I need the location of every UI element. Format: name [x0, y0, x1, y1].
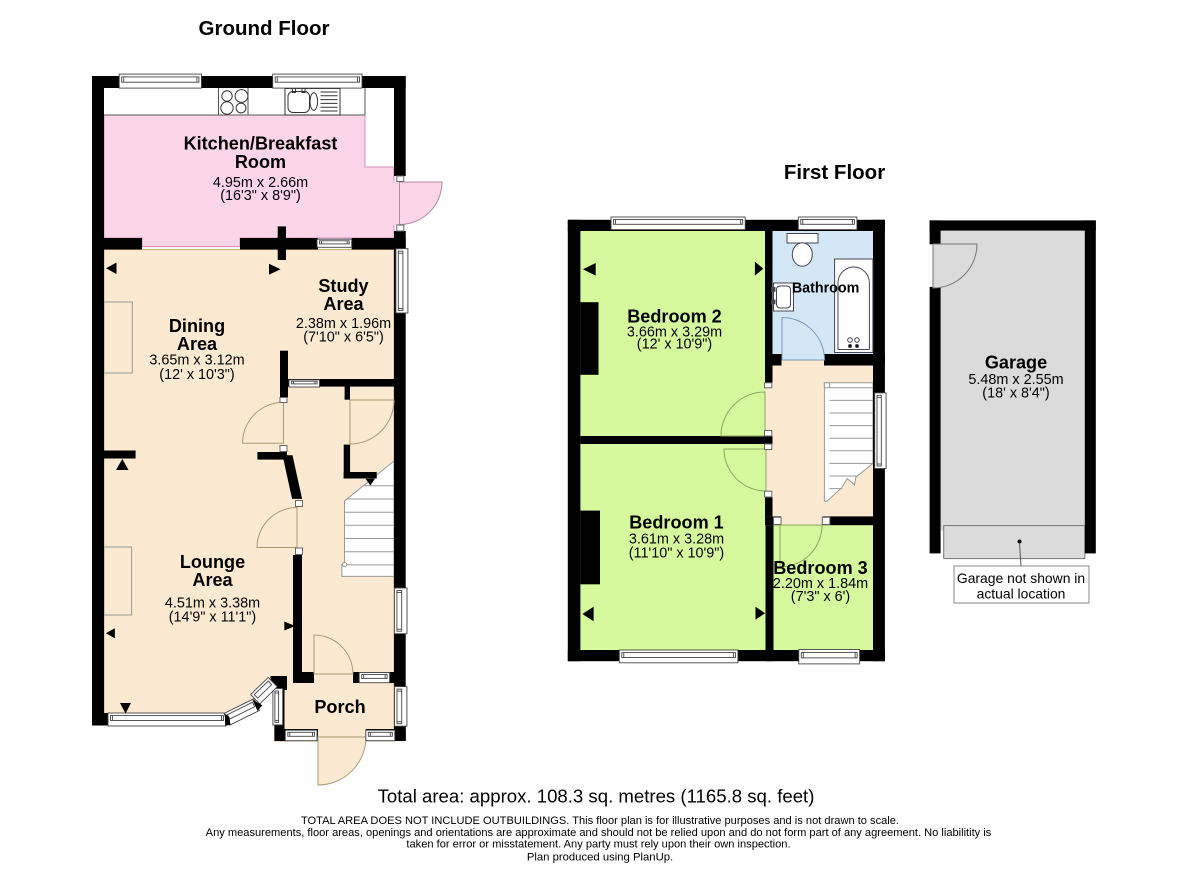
- svg-text:First Floor: First Floor: [784, 161, 885, 184]
- svg-text:Ground Floor: Ground Floor: [199, 17, 330, 40]
- svg-text:(18' x 8'4"): (18' x 8'4"): [982, 386, 1049, 402]
- svg-text:Study: Study: [318, 276, 368, 296]
- svg-text:Any measurements, floor areas,: Any measurements, floor areas, openings …: [206, 827, 992, 839]
- svg-text:Bedroom 2: Bedroom 2: [627, 306, 722, 326]
- svg-text:Area: Area: [323, 294, 364, 314]
- svg-text:Garage not shown in: Garage not shown in: [957, 570, 1085, 586]
- svg-text:(16'3" x 8'9"): (16'3" x 8'9"): [220, 188, 301, 204]
- svg-text:(11'10" x 10'9"): (11'10" x 10'9"): [629, 546, 724, 562]
- svg-text:Kitchen/Breakfast: Kitchen/Breakfast: [184, 134, 338, 154]
- svg-text:Plan produced using PlanUp.: Plan produced using PlanUp.: [527, 852, 673, 864]
- svg-text:(14'9" x 11'1"): (14'9" x 11'1"): [169, 609, 256, 625]
- svg-text:Total area: approx. 108.3 sq.: Total area: approx. 108.3 sq. metres (11…: [378, 786, 815, 807]
- svg-text:Area: Area: [177, 334, 218, 354]
- svg-text:Bedroom 1: Bedroom 1: [629, 513, 724, 533]
- svg-text:(7'3" x 6'): (7'3" x 6'): [791, 589, 850, 605]
- svg-text:Lounge: Lounge: [180, 552, 245, 572]
- svg-text:Bathroom: Bathroom: [792, 281, 860, 297]
- svg-text:TOTAL AREA DOES NOT INCLUDE OU: TOTAL AREA DOES NOT INCLUDE OUTBUILDINGS…: [301, 815, 899, 827]
- svg-text:Garage: Garage: [985, 353, 1047, 373]
- svg-text:taken for error or misstatemen: taken for error or misstatement. Any par…: [406, 839, 790, 851]
- svg-text:Area: Area: [192, 570, 233, 590]
- svg-text:Dining: Dining: [169, 316, 225, 336]
- svg-text:Room: Room: [235, 152, 286, 172]
- svg-text:(7'10" x 6'5"): (7'10" x 6'5"): [303, 329, 384, 345]
- svg-text:(12' x 10'3"): (12' x 10'3"): [159, 367, 234, 383]
- svg-text:(12' x 10'9"): (12' x 10'9"): [637, 337, 712, 353]
- svg-text:actual location: actual location: [977, 586, 1066, 602]
- svg-text:Porch: Porch: [314, 697, 365, 717]
